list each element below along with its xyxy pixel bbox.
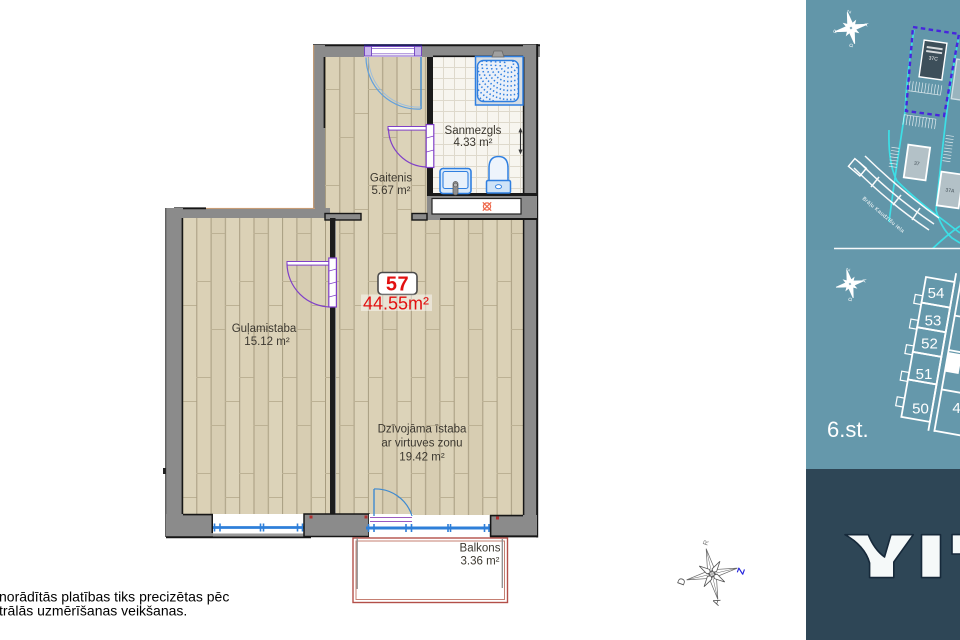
svg-text:50: 50	[912, 400, 929, 417]
svg-text:ar virtuves zonu: ar virtuves zonu	[381, 438, 462, 450]
svg-text:19.42 m²: 19.42 m²	[399, 452, 445, 464]
svg-text:6.st.: 6.st.	[827, 417, 869, 442]
svg-text:trālās uzmērīšanas veikšanas.: trālās uzmērīšanas veikšanas.	[0, 603, 187, 619]
svg-text:54: 54	[928, 285, 945, 302]
svg-text:4.33 m²: 4.33 m²	[454, 137, 493, 149]
svg-text:5.67 m²: 5.67 m²	[372, 185, 411, 197]
svg-text:Dzīvojāma īstaba: Dzīvojāma īstaba	[378, 424, 467, 436]
svg-text:15.12 m²: 15.12 m²	[244, 336, 290, 348]
svg-text:Balkons: Balkons	[460, 543, 501, 555]
svg-text:52: 52	[921, 335, 938, 352]
svg-text:3.36 m²: 3.36 m²	[461, 556, 500, 568]
svg-text:51: 51	[916, 366, 933, 383]
svg-text:53: 53	[925, 312, 942, 329]
svg-text:Sanmezgls: Sanmezgls	[445, 125, 502, 137]
svg-text:57: 57	[386, 274, 409, 296]
svg-text:Guļamistaba: Guļamistaba	[232, 323, 297, 335]
svg-text:44.55m²: 44.55m²	[363, 294, 429, 314]
svg-text:Gaitenis: Gaitenis	[370, 173, 412, 185]
svg-text:37: 37	[914, 161, 921, 168]
svg-text:4: 4	[952, 400, 960, 417]
